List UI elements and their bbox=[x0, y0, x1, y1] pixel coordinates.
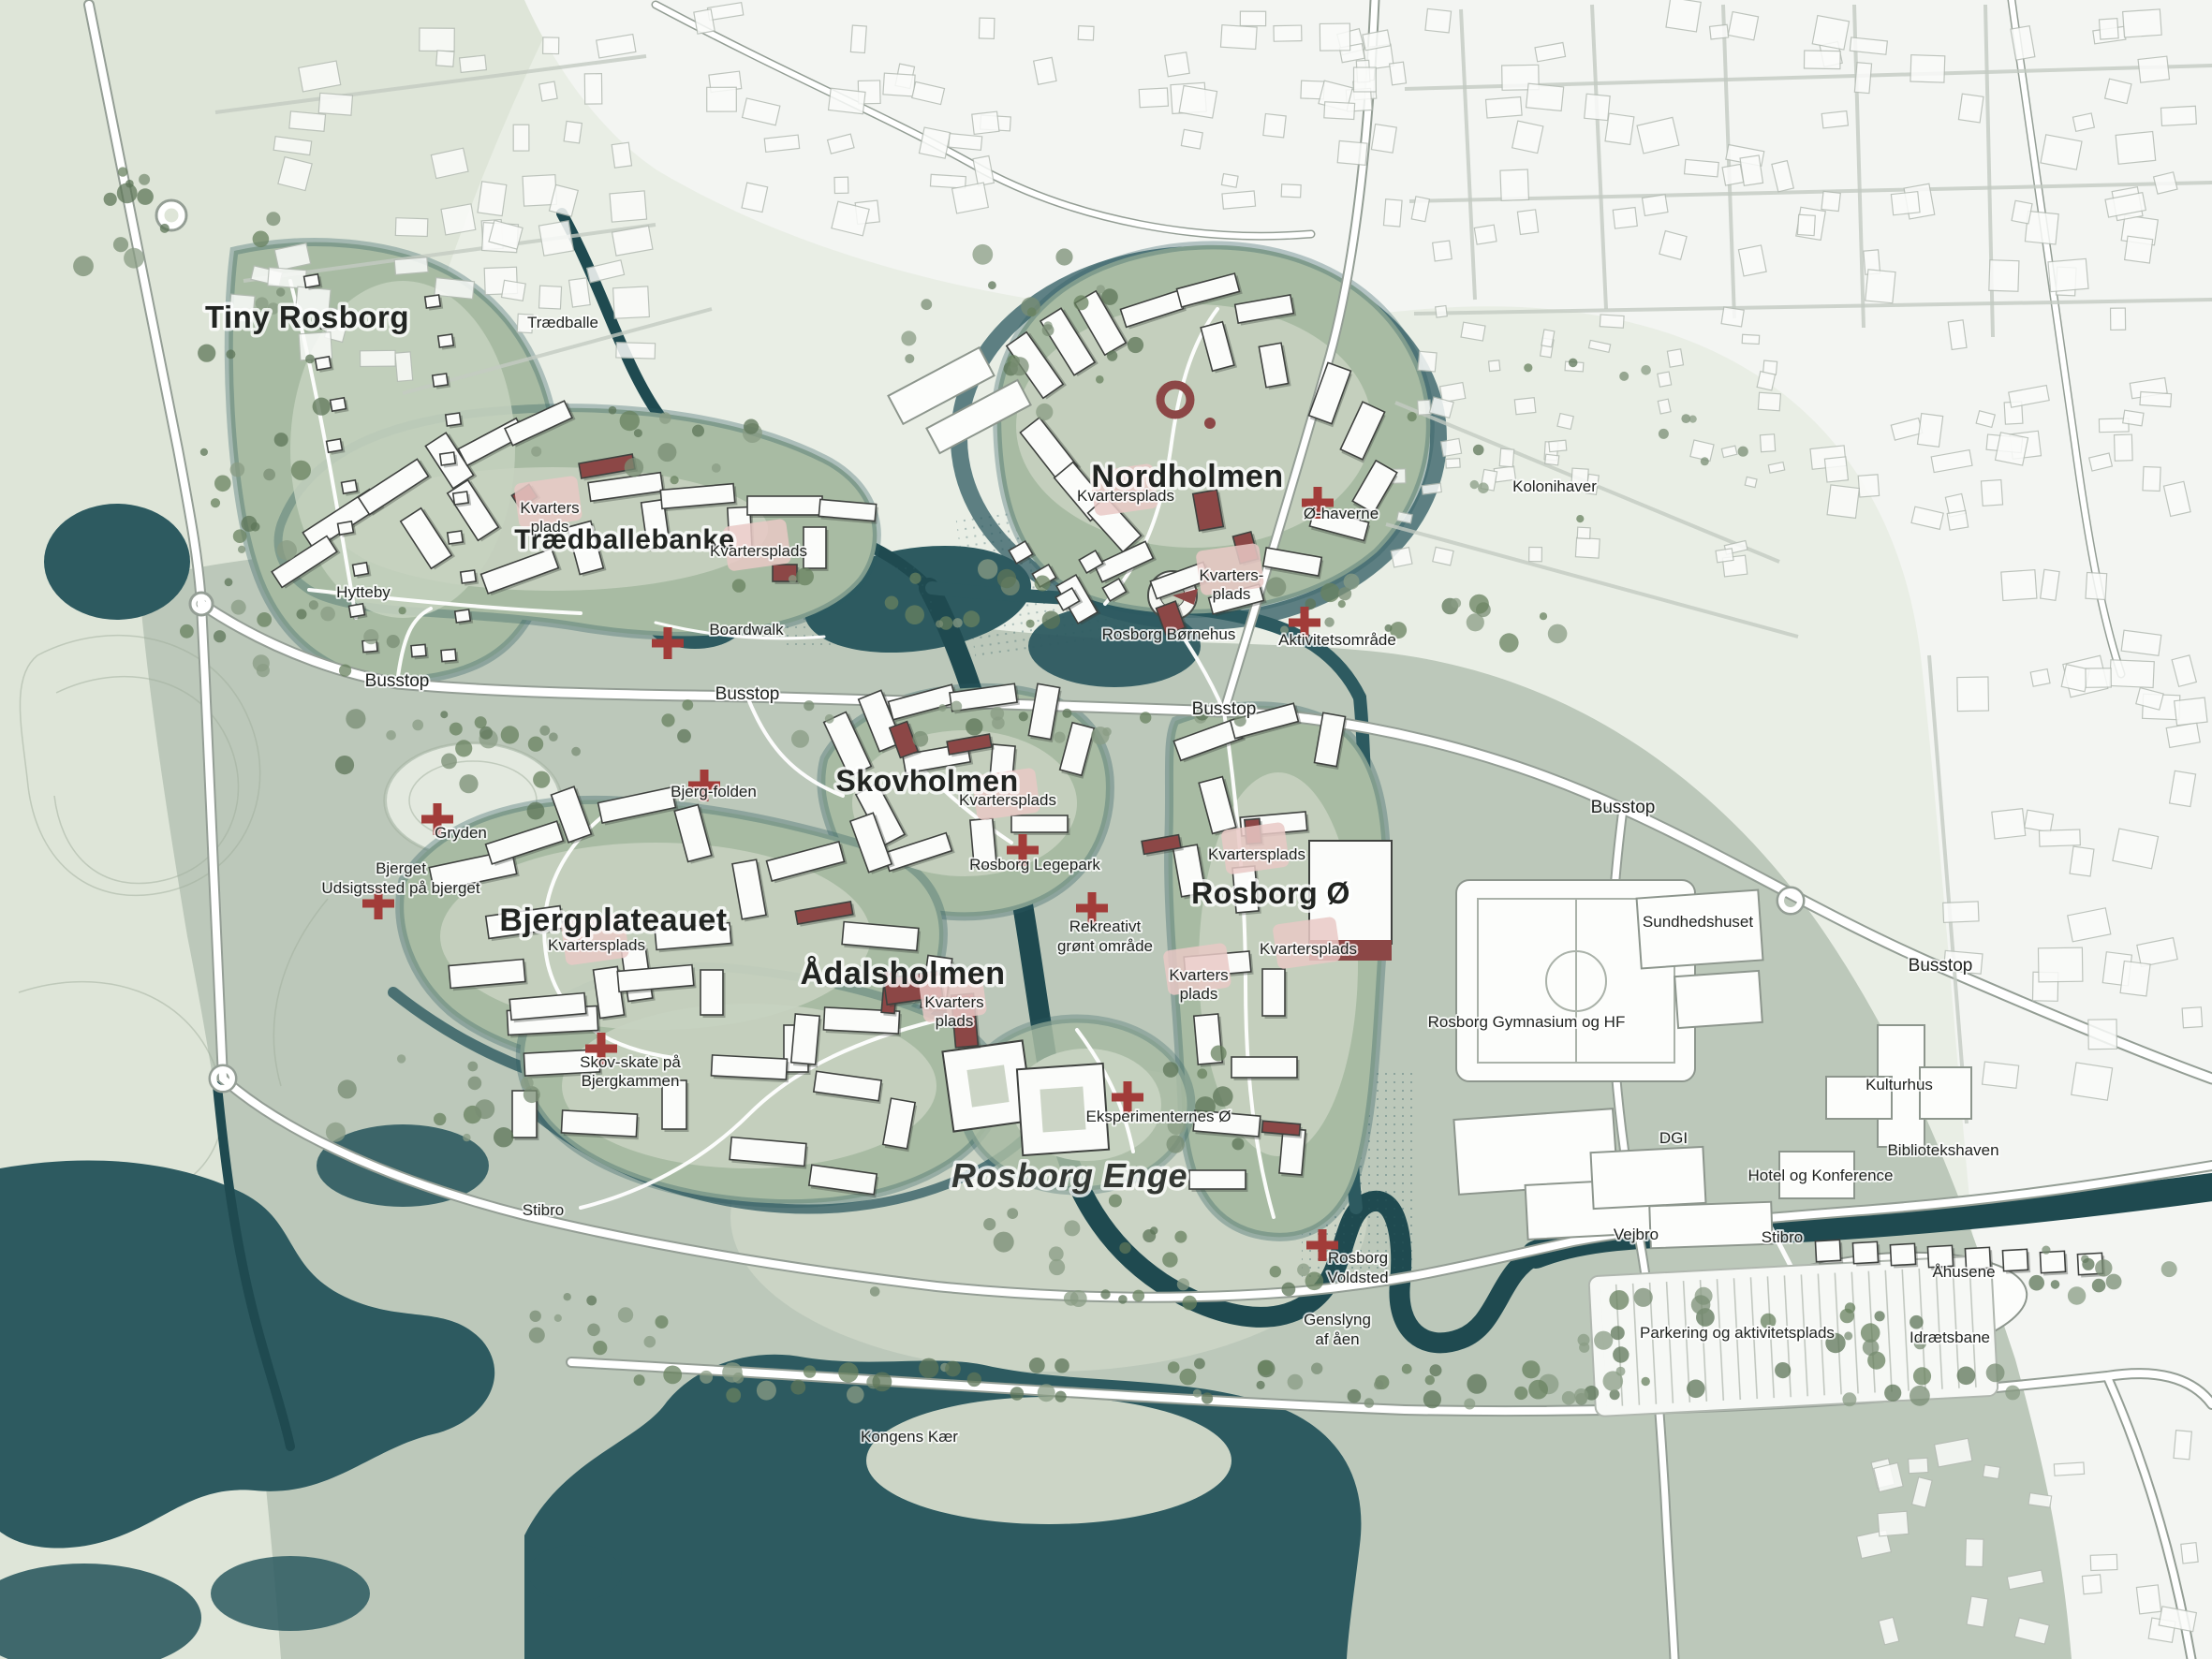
tree-icon bbox=[1594, 1331, 1613, 1350]
tree-icon bbox=[1574, 1388, 1588, 1402]
place-label: DGI bbox=[1659, 1129, 1688, 1147]
place-label: Aktivitetsområde bbox=[1278, 631, 1396, 649]
tree-icon bbox=[1473, 445, 1484, 456]
tree-icon bbox=[233, 529, 247, 543]
tree-icon bbox=[2028, 1275, 2044, 1291]
bus-stop-label: Busstop bbox=[715, 684, 780, 704]
tree-icon bbox=[1038, 1384, 1055, 1402]
tree-icon bbox=[1107, 350, 1117, 360]
tree-icon bbox=[1374, 1380, 1383, 1389]
tree-icon bbox=[73, 256, 94, 276]
tree-icon bbox=[386, 730, 396, 741]
tree-icon bbox=[139, 174, 150, 185]
tree-icon bbox=[692, 425, 704, 437]
tree-icon bbox=[238, 546, 245, 553]
tree-icon bbox=[113, 237, 128, 252]
tree-icon bbox=[912, 731, 928, 747]
tree-icon bbox=[527, 802, 545, 820]
tree-icon bbox=[804, 700, 814, 711]
tree-icon bbox=[1167, 1135, 1185, 1152]
place-label: Idrætsbane bbox=[1910, 1329, 1990, 1346]
tree-icon bbox=[1986, 1363, 2005, 1382]
tree-icon bbox=[1270, 1266, 1281, 1277]
tree-icon bbox=[1049, 1246, 1064, 1261]
tree-icon bbox=[587, 1324, 600, 1337]
tree-icon bbox=[137, 188, 154, 205]
tree-icon bbox=[1109, 1195, 1122, 1208]
place-label: Trædballe bbox=[527, 314, 598, 331]
tree-icon bbox=[700, 1371, 713, 1384]
tree-icon bbox=[291, 461, 311, 480]
place-label: Hotel og Konference bbox=[1748, 1167, 1894, 1184]
tree-icon bbox=[1118, 1295, 1128, 1304]
tree-icon bbox=[434, 1113, 446, 1125]
tree-icon bbox=[1464, 1399, 1475, 1410]
tree-icon bbox=[963, 610, 980, 627]
tree-icon bbox=[529, 1328, 545, 1343]
place-label: Gryden bbox=[435, 824, 487, 842]
tree-icon bbox=[1344, 574, 1360, 590]
tree-icon bbox=[118, 167, 127, 176]
tree-icon bbox=[804, 1365, 816, 1377]
tree-icon bbox=[530, 1311, 541, 1322]
tree-icon bbox=[945, 1361, 961, 1377]
place-label: Åhusene bbox=[1932, 1263, 1995, 1281]
tree-icon bbox=[1863, 1339, 1880, 1356]
tree-icon bbox=[1619, 372, 1629, 381]
tree-icon bbox=[1174, 1231, 1187, 1243]
tree-icon bbox=[214, 476, 231, 492]
tree-icon bbox=[1957, 1367, 1976, 1386]
tree-icon bbox=[2042, 1246, 2050, 1255]
tree-icon bbox=[1338, 587, 1351, 600]
tree-icon bbox=[320, 607, 335, 622]
place-label: Kongens Kær bbox=[861, 1428, 958, 1446]
tree-icon bbox=[625, 458, 643, 477]
tree-icon bbox=[1642, 1377, 1650, 1386]
tree-icon bbox=[501, 726, 519, 743]
tree-icon bbox=[1659, 429, 1669, 439]
bus-stop-label: Busstop bbox=[1591, 798, 1656, 817]
place-label: Hytteby bbox=[336, 583, 391, 601]
tree-icon bbox=[1738, 447, 1748, 457]
tree-icon bbox=[1348, 1389, 1362, 1403]
tree-icon bbox=[1844, 1331, 1852, 1340]
tree-icon bbox=[531, 447, 541, 457]
tree-icon bbox=[1478, 482, 1489, 493]
tree-icon bbox=[160, 224, 170, 233]
tree-icon bbox=[230, 462, 245, 477]
tree-icon bbox=[1364, 1398, 1375, 1408]
tree-icon bbox=[722, 1362, 743, 1383]
tree-icon bbox=[1522, 1360, 1540, 1378]
tree-icon bbox=[251, 522, 260, 532]
tree-icon bbox=[1701, 457, 1709, 465]
tree-icon bbox=[983, 1218, 995, 1230]
tree-icon bbox=[1042, 324, 1054, 336]
district-label: Ådalsholmen bbox=[801, 956, 1006, 991]
tree-icon bbox=[1524, 363, 1532, 372]
tree-icon bbox=[1194, 1358, 1205, 1370]
tree-icon bbox=[796, 567, 814, 585]
tree-icon bbox=[1687, 1380, 1705, 1399]
tree-icon bbox=[225, 578, 233, 586]
tree-icon bbox=[1026, 620, 1035, 628]
tree-icon bbox=[1467, 1374, 1486, 1394]
tree-icon bbox=[263, 469, 275, 481]
tree-icon bbox=[952, 618, 962, 627]
tree-icon bbox=[1029, 1358, 1045, 1373]
masterplan-canvas: Tiny RosborgTrædballebankeNordholmenSkov… bbox=[0, 0, 2212, 1659]
tree-icon bbox=[847, 1386, 864, 1403]
place-label: Boardwalk bbox=[709, 621, 784, 639]
tree-icon bbox=[2092, 1279, 2106, 1293]
tree-icon bbox=[1140, 712, 1151, 723]
tree-icon bbox=[257, 612, 272, 627]
tree-icon bbox=[455, 740, 472, 756]
tree-icon bbox=[909, 573, 921, 584]
tree-icon bbox=[1540, 612, 1547, 620]
tree-icon bbox=[838, 1362, 858, 1382]
tree-icon bbox=[1074, 295, 1089, 310]
tree-icon bbox=[1451, 598, 1461, 609]
tree-icon bbox=[1689, 416, 1697, 423]
place-label: Eksperimenternes Ø bbox=[1086, 1108, 1231, 1125]
tree-icon bbox=[1324, 617, 1334, 626]
tree-icon bbox=[533, 771, 550, 788]
tree-icon bbox=[459, 774, 478, 793]
tree-icon bbox=[463, 1134, 470, 1141]
tree-icon bbox=[620, 411, 640, 431]
tree-icon bbox=[399, 607, 406, 614]
tree-icon bbox=[791, 730, 809, 748]
tree-icon bbox=[2051, 1280, 2060, 1289]
tree-icon bbox=[335, 756, 354, 774]
tree-icon bbox=[1528, 1380, 1548, 1400]
tree-icon bbox=[1266, 577, 1286, 596]
tree-icon bbox=[277, 540, 297, 560]
tree-icon bbox=[1562, 1391, 1576, 1405]
tree-icon bbox=[661, 713, 674, 727]
tree-icon bbox=[1027, 307, 1037, 316]
tree-icon bbox=[180, 624, 194, 639]
tree-icon bbox=[1875, 1311, 1885, 1321]
plaza-label: Kvartersplads bbox=[710, 542, 807, 560]
tree-icon bbox=[339, 665, 351, 677]
tree-icon bbox=[593, 1341, 607, 1355]
tree-icon bbox=[441, 754, 457, 770]
tree-icon bbox=[901, 330, 916, 345]
tree-icon bbox=[1338, 600, 1346, 608]
tree-icon bbox=[712, 463, 721, 473]
tree-icon bbox=[905, 605, 924, 624]
tree-icon bbox=[387, 635, 400, 648]
tree-icon bbox=[659, 412, 671, 424]
tree-icon bbox=[468, 1077, 482, 1091]
tree-icon bbox=[1143, 1229, 1156, 1242]
tree-icon bbox=[1211, 1046, 1227, 1062]
tree-icon bbox=[1049, 1259, 1065, 1275]
tree-icon bbox=[1054, 732, 1065, 743]
tree-icon bbox=[732, 579, 745, 592]
tree-icon bbox=[1182, 1296, 1197, 1311]
place-label: Stibro bbox=[1762, 1228, 1803, 1246]
tree-icon bbox=[1102, 727, 1111, 736]
place-label: Vejbro bbox=[1614, 1226, 1659, 1243]
plaza-label: Kvartersplads bbox=[1077, 487, 1174, 505]
district-label: Rosborg Ø bbox=[1191, 876, 1350, 910]
tree-icon bbox=[997, 569, 1016, 588]
tree-icon bbox=[1609, 1290, 1629, 1310]
tree-icon bbox=[1430, 1364, 1442, 1376]
place-label: Rosborg Legepark bbox=[969, 856, 1100, 874]
bus-stop-label: Busstop bbox=[1192, 699, 1257, 719]
tree-icon bbox=[1842, 1392, 1856, 1406]
tree-icon bbox=[1634, 1288, 1653, 1307]
tree-icon bbox=[1910, 1315, 1924, 1329]
tree-icon bbox=[991, 707, 1005, 721]
tree-icon bbox=[951, 701, 962, 712]
tree-icon bbox=[363, 629, 378, 644]
tree-icon bbox=[549, 732, 558, 741]
tree-icon bbox=[744, 419, 759, 434]
dgi-building bbox=[1591, 1147, 1706, 1209]
tree-icon bbox=[200, 448, 208, 456]
tree-icon bbox=[104, 193, 117, 206]
tree-icon bbox=[609, 406, 617, 415]
place-label: Parkering og aktivitetsplads bbox=[1640, 1324, 1835, 1342]
tree-icon bbox=[125, 180, 134, 188]
bus-stop-label: Busstop bbox=[1909, 956, 1973, 976]
tree-icon bbox=[214, 630, 226, 642]
tree-icon bbox=[1470, 480, 1479, 489]
tree-icon bbox=[1036, 404, 1053, 420]
plaza-label: Kvartersplads bbox=[959, 791, 1056, 809]
tree-icon bbox=[1054, 1358, 1069, 1373]
tree-icon bbox=[297, 609, 307, 620]
tree-icon bbox=[440, 711, 448, 718]
tree-icon bbox=[1180, 1369, 1197, 1386]
tree-icon bbox=[2068, 1286, 2086, 1304]
tree-icon bbox=[726, 1387, 741, 1402]
plaza-label: Kvartersplads bbox=[1260, 940, 1357, 958]
tree-icon bbox=[1232, 1138, 1245, 1150]
place-label: Stibro bbox=[523, 1201, 564, 1219]
tree-icon bbox=[274, 433, 288, 447]
tree-icon bbox=[873, 1373, 892, 1392]
tree-icon bbox=[1641, 365, 1651, 375]
place-label: Ø-haverne bbox=[1304, 505, 1379, 522]
tree-icon bbox=[936, 620, 943, 627]
place-label: Kolonihaver bbox=[1512, 477, 1597, 495]
tree-icon bbox=[528, 737, 543, 752]
tree-icon bbox=[1576, 515, 1584, 522]
tree-icon bbox=[1119, 1242, 1130, 1254]
tree-icon bbox=[231, 600, 246, 615]
plaza-label: Kvartersplads bbox=[1208, 845, 1305, 863]
tree-icon bbox=[1168, 1361, 1180, 1373]
tree-icon bbox=[1775, 1362, 1791, 1378]
tree-icon bbox=[978, 559, 997, 579]
tree-icon bbox=[257, 664, 270, 677]
tree-icon bbox=[564, 1293, 571, 1300]
tree-icon bbox=[1425, 1375, 1435, 1385]
tree-icon bbox=[1197, 1068, 1207, 1079]
place-label: Kulturhus bbox=[1865, 1076, 1933, 1094]
tree-icon bbox=[1042, 611, 1060, 629]
tree-icon bbox=[663, 1366, 682, 1385]
tree-icon bbox=[571, 747, 581, 756]
tree-icon bbox=[309, 600, 318, 609]
tree-icon bbox=[305, 355, 315, 364]
tree-icon bbox=[124, 248, 144, 269]
tree-icon bbox=[1423, 1390, 1441, 1408]
tree-icon bbox=[1055, 1391, 1067, 1402]
place-label: Rosborg Børnehus bbox=[1102, 625, 1236, 643]
bus-stop-label: Busstop bbox=[365, 671, 430, 691]
place-label: Rosborg Gymnasium og HF bbox=[1428, 1013, 1626, 1031]
tree-icon bbox=[521, 1077, 534, 1090]
tree-icon bbox=[266, 212, 280, 226]
tree-icon bbox=[1611, 1326, 1625, 1340]
tree-icon bbox=[1193, 1389, 1202, 1398]
tree-icon bbox=[1007, 1208, 1018, 1219]
tree-icon bbox=[994, 1232, 1014, 1253]
tree-icon bbox=[967, 1373, 981, 1387]
tree-icon bbox=[1913, 1367, 1931, 1385]
tree-icon bbox=[657, 443, 676, 462]
tree-icon bbox=[1305, 1272, 1324, 1291]
place-label: Bibliotekshaven bbox=[1887, 1141, 1998, 1159]
tree-icon bbox=[586, 1296, 597, 1306]
tree-icon bbox=[1062, 709, 1071, 718]
tree-icon bbox=[972, 244, 993, 265]
place-label: Skov-skate påBjergkammen bbox=[580, 1053, 681, 1090]
tree-icon bbox=[885, 596, 899, 610]
tree-icon bbox=[1548, 624, 1568, 644]
tree-icon bbox=[397, 1054, 406, 1063]
tree-icon bbox=[1035, 576, 1051, 592]
tree-icon bbox=[789, 575, 797, 583]
tree-icon bbox=[1257, 1381, 1265, 1389]
tree-icon bbox=[412, 720, 423, 731]
tree-icon bbox=[539, 726, 550, 736]
tree-icon bbox=[921, 299, 932, 310]
place-label: Sundhedshuset bbox=[1643, 913, 1753, 931]
tree-icon bbox=[1311, 1363, 1322, 1374]
tree-icon bbox=[1288, 1374, 1304, 1390]
district-label: Bjergplateauet bbox=[499, 903, 727, 938]
tree-icon bbox=[276, 287, 285, 296]
tree-icon bbox=[1408, 412, 1417, 421]
tree-icon bbox=[1100, 1289, 1110, 1299]
tree-icon bbox=[467, 1062, 478, 1072]
tree-icon bbox=[1064, 1220, 1080, 1236]
tree-icon bbox=[1163, 1062, 1179, 1078]
tree-icon bbox=[682, 699, 693, 711]
place-label: Bjerg-folden bbox=[671, 783, 757, 800]
tree-icon bbox=[938, 704, 946, 712]
tree-icon bbox=[1603, 1371, 1624, 1391]
tree-icon bbox=[757, 1381, 776, 1401]
tree-icon bbox=[1469, 595, 1489, 614]
tree-icon bbox=[1177, 1278, 1189, 1290]
tree-icon bbox=[1070, 1290, 1087, 1307]
tree-icon bbox=[1213, 1086, 1233, 1107]
tree-icon bbox=[870, 1286, 880, 1297]
tree-icon bbox=[644, 1336, 656, 1348]
tree-icon bbox=[313, 398, 331, 416]
tree-icon bbox=[1884, 1385, 1901, 1402]
tree-icon bbox=[634, 1374, 645, 1386]
tree-icon bbox=[790, 1380, 805, 1395]
tree-icon bbox=[2082, 1258, 2094, 1270]
tree-icon bbox=[1162, 1252, 1177, 1267]
district-label: Rosborg Enge bbox=[951, 1156, 1187, 1195]
tree-icon bbox=[475, 1099, 494, 1119]
tree-icon bbox=[1402, 1364, 1412, 1374]
tree-icon bbox=[1320, 583, 1339, 602]
tree-icon bbox=[346, 709, 365, 728]
tree-icon bbox=[966, 718, 982, 735]
tree-icon bbox=[1019, 712, 1028, 721]
plaza-label: Kvartersplads bbox=[548, 936, 645, 954]
tree-icon bbox=[1282, 1283, 1296, 1297]
tree-icon bbox=[1691, 1295, 1711, 1314]
tree-icon bbox=[634, 429, 642, 437]
tree-icon bbox=[2095, 1259, 2112, 1276]
tree-icon bbox=[618, 1307, 633, 1322]
tree-icon bbox=[1128, 337, 1143, 353]
tree-icon bbox=[1840, 1309, 1854, 1323]
tree-icon bbox=[1258, 1360, 1273, 1375]
district-label: Tiny Rosborg bbox=[205, 300, 409, 334]
tree-icon bbox=[825, 714, 834, 724]
tree-icon bbox=[2106, 1274, 2122, 1290]
tree-icon bbox=[475, 716, 487, 728]
tree-icon bbox=[494, 1127, 513, 1147]
tree-icon bbox=[211, 498, 220, 507]
tree-icon bbox=[1910, 1386, 1930, 1406]
tree-icon bbox=[1613, 1346, 1629, 1362]
tree-icon bbox=[1202, 1392, 1213, 1403]
tree-icon bbox=[2005, 1386, 2020, 1401]
tree-icon bbox=[1569, 359, 1578, 368]
tree-icon bbox=[1010, 357, 1029, 375]
tree-icon bbox=[554, 1314, 562, 1322]
tree-icon bbox=[1297, 1264, 1310, 1277]
hotel-building bbox=[1649, 1202, 1772, 1249]
tree-icon bbox=[1096, 375, 1104, 384]
tree-icon bbox=[1514, 1387, 1527, 1400]
tree-icon bbox=[198, 345, 215, 362]
tree-icon bbox=[326, 1123, 346, 1142]
tree-icon bbox=[656, 1315, 669, 1329]
tree-icon bbox=[1010, 1387, 1025, 1401]
tree-icon bbox=[253, 231, 270, 248]
tree-icon bbox=[919, 1358, 938, 1378]
tree-icon bbox=[1132, 1290, 1144, 1302]
tree-icon bbox=[988, 281, 996, 289]
tree-icon bbox=[450, 723, 463, 736]
tree-icon bbox=[338, 1079, 357, 1098]
masterplan-map: Tiny RosborgTrædballebankeNordholmenSkov… bbox=[0, 0, 2212, 1659]
tree-icon bbox=[905, 354, 914, 363]
tree-icon bbox=[671, 476, 679, 484]
tree-icon bbox=[1499, 633, 1519, 653]
tree-icon bbox=[677, 729, 691, 743]
tree-icon bbox=[1610, 1389, 1620, 1400]
